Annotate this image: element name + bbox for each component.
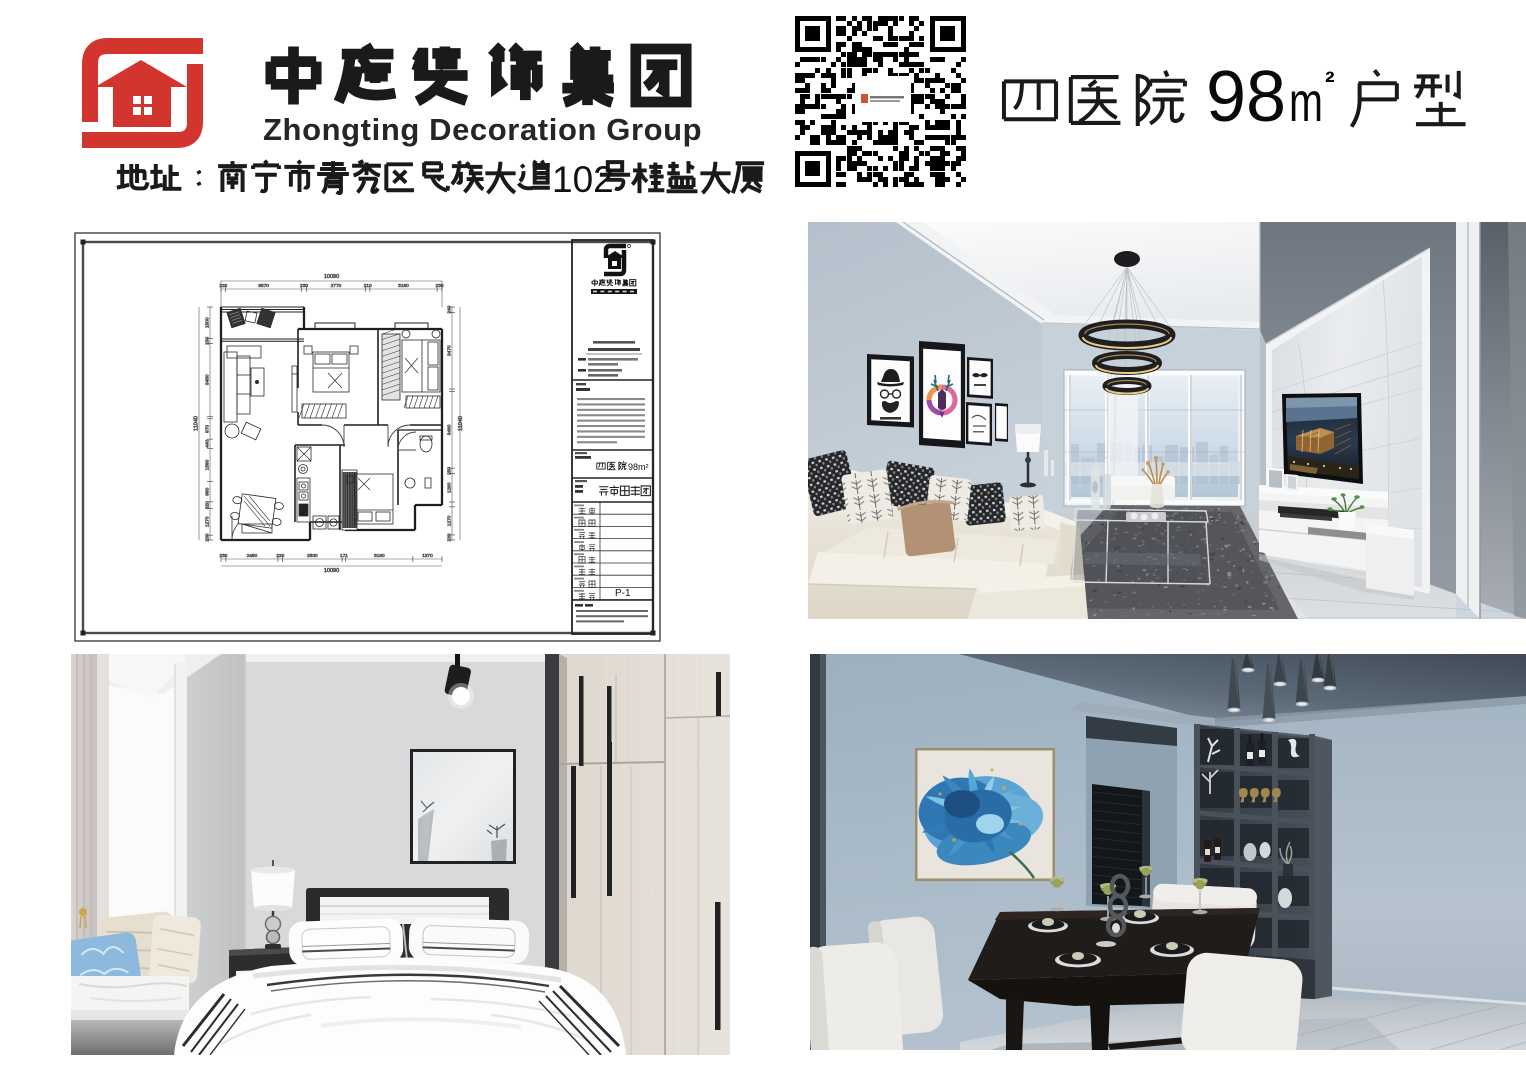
svg-text:970: 970 <box>205 425 211 433</box>
svg-text:m: m <box>1289 70 1323 133</box>
svg-text:P-1: P-1 <box>615 588 631 599</box>
svg-text:98m²: 98m² <box>628 462 649 472</box>
svg-text:102: 102 <box>552 159 614 200</box>
svg-text:1500: 1500 <box>205 317 211 328</box>
svg-text:230: 230 <box>205 533 211 541</box>
svg-text:230: 230 <box>300 283 308 289</box>
svg-text:2770: 2770 <box>331 283 342 289</box>
svg-text:3160: 3160 <box>398 283 409 289</box>
svg-text:1280: 1280 <box>447 482 453 493</box>
svg-text:3160: 3160 <box>374 553 385 559</box>
svg-text:3470: 3470 <box>447 345 453 356</box>
svg-text:1270: 1270 <box>447 515 453 526</box>
svg-text:320: 320 <box>205 501 211 509</box>
svg-text:Zhongting Decoration Group: Zhongting Decoration Group <box>263 112 702 147</box>
svg-text:230: 230 <box>205 337 211 345</box>
svg-text:²: ² <box>1325 67 1335 99</box>
svg-text:171: 171 <box>340 553 348 559</box>
svg-text:10090: 10090 <box>324 274 339 280</box>
svg-text:3480: 3480 <box>205 374 211 385</box>
svg-text:220: 220 <box>276 553 284 559</box>
svg-text:3460: 3460 <box>447 424 453 435</box>
svg-text:230: 230 <box>436 283 444 289</box>
svg-text:1370: 1370 <box>422 553 433 559</box>
svg-text:2450: 2450 <box>247 553 258 559</box>
svg-text:11040: 11040 <box>194 416 200 431</box>
svg-text:10090: 10090 <box>324 568 339 574</box>
svg-text:210: 210 <box>364 283 372 289</box>
svg-text:440: 440 <box>205 439 211 447</box>
svg-text:98: 98 <box>1206 57 1286 137</box>
svg-text:960: 960 <box>205 487 211 495</box>
svg-text:1270: 1270 <box>205 516 211 527</box>
svg-text:2800: 2800 <box>307 553 318 559</box>
svg-text:230: 230 <box>219 553 227 559</box>
svg-text:220: 220 <box>219 283 227 289</box>
svg-text:3570: 3570 <box>258 283 269 289</box>
svg-text:1590: 1590 <box>205 459 211 470</box>
svg-text:11040: 11040 <box>458 416 464 431</box>
